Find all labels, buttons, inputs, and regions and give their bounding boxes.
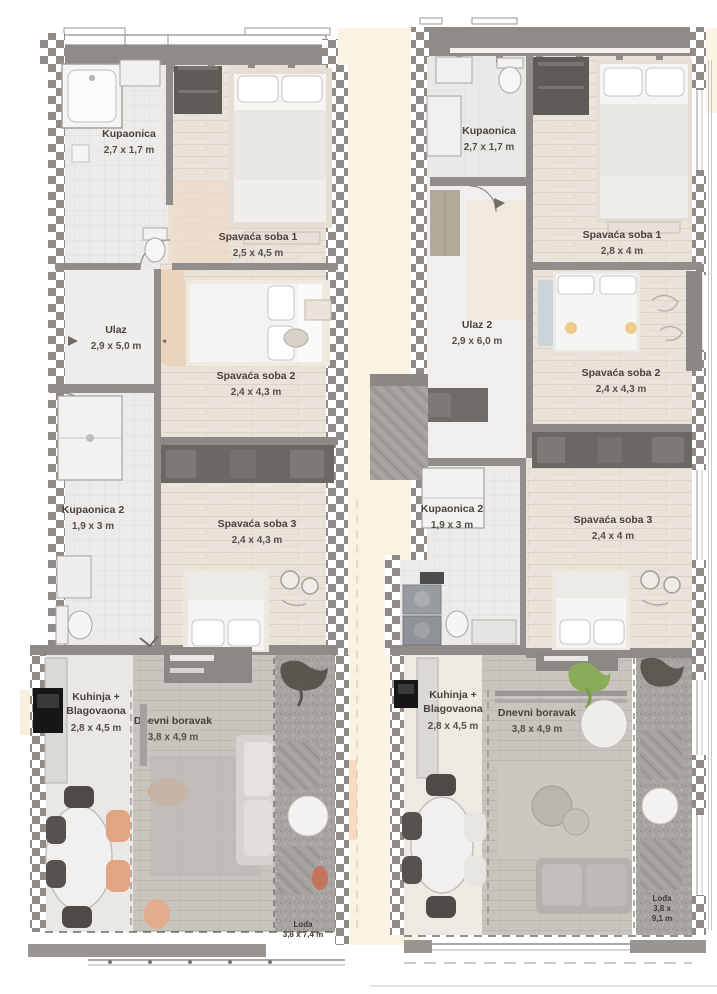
svg-text:Lođa: Lođa	[293, 920, 313, 929]
svg-text:Kuhinja +: Kuhinja +	[72, 691, 120, 703]
svg-text:2,4 x 4,3 m: 2,4 x 4,3 m	[231, 387, 282, 398]
svg-text:Ulaz 2: Ulaz 2	[462, 319, 493, 331]
svg-text:Kuhinja +: Kuhinja +	[429, 689, 477, 701]
svg-text:2,7 x 1,7 m: 2,7 x 1,7 m	[104, 145, 155, 156]
svg-text:Ulaz: Ulaz	[105, 324, 127, 336]
svg-text:1,9 x 3 m: 1,9 x 3 m	[72, 521, 114, 532]
svg-text:2,4 x 4,3 m: 2,4 x 4,3 m	[596, 384, 647, 395]
svg-text:2,9 x 6,0 m: 2,9 x 6,0 m	[452, 336, 503, 347]
svg-text:Spavaća soba 3: Spavaća soba 3	[574, 514, 653, 526]
svg-text:Dnevni boravak: Dnevni boravak	[498, 707, 576, 719]
svg-text:Spavaća soba 3: Spavaća soba 3	[218, 518, 297, 530]
svg-text:Spavaća soba 2: Spavaća soba 2	[217, 370, 296, 382]
svg-text:2,8 x 4 m: 2,8 x 4 m	[601, 246, 643, 257]
svg-text:2,4 x 4 m: 2,4 x 4 m	[592, 531, 634, 542]
svg-text:Blagovaona: Blagovaona	[423, 703, 483, 715]
svg-text:Spavaća soba 2: Spavaća soba 2	[582, 367, 661, 379]
svg-text:Kupaonica: Kupaonica	[462, 125, 516, 137]
svg-text:3,8 x 4,9 m: 3,8 x 4,9 m	[148, 732, 199, 743]
svg-text:2,7 x 1,7 m: 2,7 x 1,7 m	[464, 142, 515, 153]
svg-text:Blagovaona: Blagovaona	[66, 705, 126, 717]
svg-text:Kupaonica: Kupaonica	[102, 128, 156, 140]
svg-text:Spavaća soba 1: Spavaća soba 1	[583, 229, 662, 241]
svg-text:2,8 x 4,5 m: 2,8 x 4,5 m	[428, 721, 479, 732]
svg-text:2,5 x 4,5 m: 2,5 x 4,5 m	[233, 248, 284, 259]
svg-text:3,8 x: 3,8 x	[653, 904, 671, 913]
svg-text:Lođa: Lođa	[652, 894, 672, 903]
svg-text:9,1 m: 9,1 m	[652, 914, 672, 923]
svg-text:3,8 x 4,9 m: 3,8 x 4,9 m	[512, 724, 563, 735]
svg-text:2,8 x 4,5 m: 2,8 x 4,5 m	[71, 723, 122, 734]
svg-text:1,9 x 3 m: 1,9 x 3 m	[431, 520, 473, 531]
svg-text:Spavaća soba 1: Spavaća soba 1	[219, 231, 298, 243]
svg-text:Kupaonica 2: Kupaonica 2	[62, 504, 125, 516]
svg-text:2,9 x 5,0 m: 2,9 x 5,0 m	[91, 341, 142, 352]
svg-text:2,4 x 4,3 m: 2,4 x 4,3 m	[232, 535, 283, 546]
svg-text:Kupaonica 2: Kupaonica 2	[421, 503, 484, 515]
svg-text:3,8 x 7,4 m: 3,8 x 7,4 m	[283, 930, 323, 939]
